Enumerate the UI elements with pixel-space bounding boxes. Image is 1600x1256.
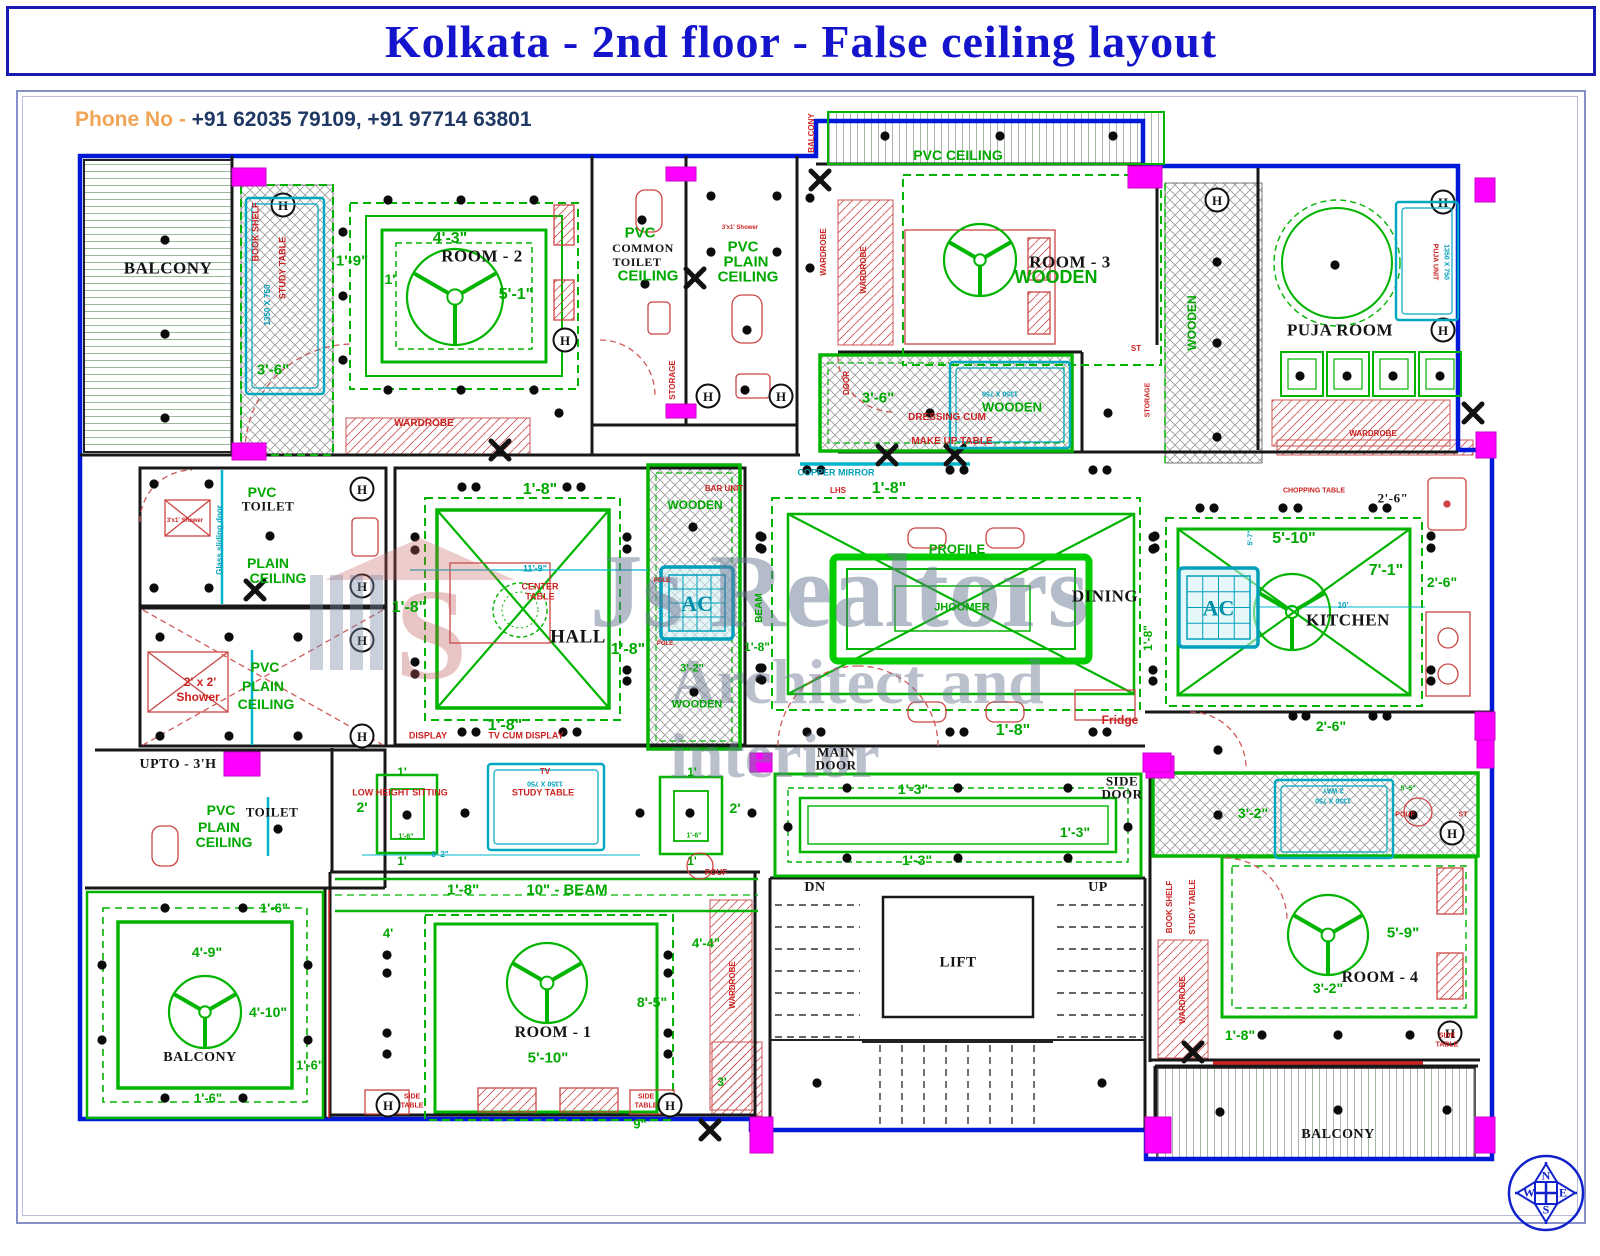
- ceiling-light-dot: [265, 531, 274, 540]
- ceiling-light-dot: [842, 853, 851, 862]
- plan-label: 1': [397, 855, 407, 867]
- ceiling-light-dot: [805, 193, 814, 202]
- ceiling-light-dot: [805, 263, 814, 272]
- ceiling-light-dot: [1103, 408, 1112, 417]
- plan-label: WARDROBE: [394, 419, 453, 429]
- ceiling-light-dot: [456, 385, 465, 394]
- ceiling-light-dot: [460, 808, 469, 817]
- ceiling-light-dot: [554, 408, 563, 417]
- floor-plan-canvas: Kolkata - 2nd floor - False ceiling layo…: [0, 0, 1600, 1256]
- ceiling-light-dot: [471, 727, 480, 736]
- ceiling-light-dot: [959, 465, 968, 474]
- ceiling-light-dot: [1342, 371, 1351, 380]
- plan-label: HALL: [550, 628, 606, 647]
- plan-label: 1350 X 750: [264, 285, 272, 326]
- junction-box-icon: [811, 171, 829, 189]
- ceiling-light-dot: [995, 131, 1004, 140]
- column-block: [1475, 712, 1495, 740]
- ceiling-light-dot: [635, 808, 644, 817]
- plan-label: 5'-1": [499, 287, 534, 303]
- ceiling-light-dot: [622, 676, 631, 685]
- plan-label: TABLE: [525, 593, 554, 602]
- ceiling-light-dot: [816, 727, 825, 736]
- plan-label: UP: [1088, 881, 1108, 895]
- ceiling-light-dot: [410, 657, 419, 666]
- ceiling-light-dot: [160, 413, 169, 422]
- ceiling-light-dot: [238, 1093, 247, 1102]
- plan-label: CEILING: [238, 697, 295, 711]
- plan-label: BALCONY: [124, 260, 213, 277]
- ceiling-light-dot: [1301, 711, 1310, 720]
- column-block: [1143, 753, 1171, 772]
- plan-label: 4'-9": [192, 945, 222, 959]
- plan-label: 10" - BEAM: [526, 883, 607, 898]
- plan-label: CHOPPING TABLE: [1283, 488, 1345, 495]
- plan-label: WOODEN: [982, 401, 1042, 414]
- ceiling-light-dot: [688, 522, 697, 531]
- ceiling-light-dot: [204, 583, 213, 592]
- ceiling-light-dot: [663, 968, 672, 977]
- ceiling-light-dot: [772, 247, 781, 256]
- ceiling-light-dot: [1102, 465, 1111, 474]
- ceiling-light-dot: [576, 482, 585, 491]
- ceiling-light-dot: [572, 727, 581, 736]
- plan-label: COPPER MIRROR: [797, 469, 874, 478]
- plan-label: 1'-8": [996, 723, 1031, 739]
- plan-label: 2' x 2': [184, 676, 216, 688]
- ceiling-light-dot: [1426, 543, 1435, 552]
- ceiling-light-dot: [1108, 131, 1117, 140]
- plan-label: STORAGE: [669, 360, 677, 399]
- ceiling-light-dot: [945, 465, 954, 474]
- ceiling-light-dot: [338, 355, 347, 364]
- plan-label: STUDY TABLE: [279, 237, 288, 299]
- ceiling-light-dot: [224, 731, 233, 740]
- ceiling-light-dot: [622, 665, 631, 674]
- plan-label: DOOR: [816, 759, 857, 772]
- ceiling-light-dot: [685, 808, 694, 817]
- plan-label: BALCONY: [163, 1051, 237, 1065]
- ceiling-light-dot: [410, 669, 419, 678]
- plan-label: SIDE: [1439, 1033, 1455, 1040]
- plan-label: 1'-6": [398, 834, 413, 841]
- plan-label: WARDROBE: [1349, 430, 1397, 438]
- ceiling-light-dot: [1278, 503, 1287, 512]
- plan-label: POUF: [705, 869, 727, 877]
- plan-label: TV: [540, 768, 550, 776]
- plan-label: POLE: [654, 578, 670, 584]
- ceiling-light-dot: [238, 903, 247, 912]
- ceiling-light-dot: [663, 1028, 672, 1037]
- column-block: [232, 443, 266, 460]
- ceiling-light-dot: [224, 632, 233, 641]
- plan-label: POUF: [1395, 812, 1414, 819]
- wardrobe-unit-icon: [488, 764, 604, 850]
- plan-label: TOILET: [242, 500, 295, 513]
- plan-label: TABLE: [401, 1103, 424, 1110]
- plan-label: 1350 X 750: [527, 780, 563, 787]
- plan-label: 5'-9": [1387, 926, 1419, 941]
- plan-label: 10': [1338, 602, 1349, 610]
- ceiling-light-dot: [757, 532, 766, 541]
- column-block: [666, 404, 696, 418]
- column-block: [750, 753, 772, 772]
- ceiling-light-dot: [1382, 711, 1391, 720]
- plan-label: SIDE: [638, 1094, 654, 1101]
- column-block: [224, 752, 260, 776]
- ceiling-light-dot: [97, 1035, 106, 1044]
- plan-label: LHS: [830, 487, 846, 495]
- ceiling-light-dot: [529, 195, 538, 204]
- ceiling-light-dot: [757, 663, 766, 672]
- hanging-light-letter: H: [1212, 193, 1222, 208]
- plan-label: CEILING: [250, 571, 307, 585]
- plan-label: PLAIN: [198, 820, 240, 834]
- junction-box-icon: [701, 1121, 719, 1139]
- plan-label: 1'-3": [902, 853, 932, 867]
- plan-label: 3': [717, 1076, 727, 1088]
- hanging-light-letter: H: [278, 198, 288, 213]
- plan-label: WARDROBE: [729, 961, 737, 1009]
- ceiling-light-dot: [953, 783, 962, 792]
- plan-label: STUDY TABLE: [1189, 879, 1197, 934]
- ceiling-light-dot: [402, 810, 411, 819]
- staircase: [775, 905, 1143, 1125]
- ceiling-light-dot: [382, 1049, 391, 1058]
- plan-label: 3'-2": [1313, 981, 1343, 995]
- ceiling-light-dot: [1088, 465, 1097, 474]
- plan-label: PLAIN: [724, 255, 769, 270]
- ac-unit-label: AC: [1203, 596, 1235, 621]
- plan-label: ROOM - 1: [515, 1025, 592, 1041]
- plan-label: DOOR: [1102, 788, 1143, 801]
- ceiling-light-dot: [160, 903, 169, 912]
- plan-label: CEILING: [718, 270, 779, 285]
- hanging-light-letter: H: [357, 633, 367, 648]
- plan-label: 1'-8": [611, 642, 646, 658]
- plan-label: ST: [1131, 345, 1141, 353]
- ceiling-light-dot: [1426, 531, 1435, 540]
- ceiling-light-dot: [303, 1035, 312, 1044]
- ceiling-light-dot: [204, 479, 213, 488]
- ceiling-light-dot: [1097, 1078, 1106, 1087]
- ceiling-light-dot: [663, 1049, 672, 1058]
- plan-label: 1350 X 750: [1315, 797, 1351, 804]
- plan-label: PUJA UNIT: [1432, 244, 1439, 281]
- plan-label: Shower: [176, 691, 219, 703]
- plan-label: WOODEN: [1015, 268, 1098, 286]
- hanging-light-letter: H: [703, 389, 713, 404]
- plan-label: 1'-6": [194, 1092, 222, 1105]
- ceiling-light-dot: [383, 385, 392, 394]
- plan-label: 5'-5": [1400, 786, 1415, 793]
- plan-label: PVC: [207, 803, 236, 817]
- plan-label: 1'-8": [1142, 625, 1154, 651]
- plan-label: 1': [687, 766, 697, 778]
- ceiling-light-dot: [160, 235, 169, 244]
- ceiling-light-dot: [1213, 810, 1222, 819]
- plan-label: 2': [356, 800, 367, 814]
- plan-label: 4'-3": [433, 231, 468, 247]
- ceiling-light-dot: [1063, 783, 1072, 792]
- plan-label: 3'-2": [1238, 806, 1268, 820]
- plan-label: 1': [687, 855, 697, 867]
- ceiling-light-dot: [1333, 1105, 1342, 1114]
- ceiling-light-dot: [338, 227, 347, 236]
- plan-label: CENTER: [521, 583, 558, 592]
- plan-label: DINING: [1072, 588, 1138, 605]
- plan-label: PLAIN: [247, 556, 289, 570]
- ceiling-light-dot: [1212, 338, 1221, 347]
- plan-label: 1'-8": [523, 482, 558, 498]
- ceiling-light-dot: [880, 131, 889, 140]
- plan-label: CEILING: [196, 835, 253, 849]
- column-block: [1475, 178, 1495, 202]
- plan-label: 1': [384, 272, 395, 286]
- hanging-light-letter: H: [1447, 826, 1457, 841]
- ceiling-light-dot: [1333, 1030, 1342, 1039]
- plan-label: STORAGE: [1145, 383, 1152, 418]
- ceiling-light-dot: [562, 482, 571, 491]
- hanging-light-letter: H: [357, 482, 367, 497]
- hanging-light-letter: H: [776, 389, 786, 404]
- plan-label: 3'x1' Shower: [722, 225, 758, 231]
- column-block: [1475, 1117, 1495, 1153]
- ceiling-light-dot: [1150, 543, 1159, 552]
- column-block: [1477, 740, 1494, 768]
- ceiling-light-dot: [471, 482, 480, 491]
- plan-label: MAKE UP TABLE: [911, 437, 992, 447]
- ceiling-light-dot: [812, 1078, 821, 1087]
- ceiling-light-dot: [747, 808, 756, 817]
- ceiling-light-dot: [1102, 727, 1111, 736]
- plan-label: PVC: [625, 226, 656, 241]
- column-block: [1145, 1117, 1171, 1153]
- plan-label: POLE: [657, 641, 673, 647]
- ceiling-light-dot: [155, 731, 164, 740]
- compass-w: W: [1523, 1186, 1535, 1201]
- plan-label: PROFILE: [929, 543, 985, 556]
- stair-landing: [770, 1040, 1145, 1042]
- plan-label: 2'-6": [1427, 575, 1457, 589]
- plan-label: 5'-10": [1272, 531, 1315, 547]
- ceiling-light-dot: [149, 479, 158, 488]
- ceiling-light-dot: [1368, 711, 1377, 720]
- plan-label: TABLE: [635, 1103, 658, 1110]
- ceiling-light-dot: [1257, 1030, 1266, 1039]
- ceiling-light-dot: [1212, 257, 1221, 266]
- plan-label: UPTO - 3'H: [139, 758, 216, 772]
- ceiling-light-dot: [689, 687, 698, 696]
- ceiling-light-dot: [457, 482, 466, 491]
- plan-label: PVC: [248, 485, 277, 499]
- plan-label: DN: [804, 881, 825, 895]
- ceiling-light-dot: [382, 1028, 391, 1037]
- ceiling-light-dot: [1148, 665, 1157, 674]
- plan-label: 1'-6": [686, 833, 701, 840]
- compass-svg: [1505, 1152, 1587, 1234]
- compass-s: S: [1543, 1203, 1550, 1218]
- ceiling-light-dot: [802, 727, 811, 736]
- plan-label: 11'-9": [523, 565, 547, 574]
- plan-label: 1350 X 750: [1443, 244, 1450, 280]
- junction-box-icon: [1464, 404, 1482, 422]
- hanging-light-letter: H: [560, 333, 570, 348]
- plan-label: 1'-9": [336, 254, 368, 269]
- ceiling-light-dot: [1215, 1107, 1224, 1116]
- ceiling-light-dot: [97, 960, 106, 969]
- ceiling-light-dot: [273, 824, 282, 833]
- ceiling-light-dot: [1195, 503, 1204, 512]
- plan-label: 1'-8": [744, 641, 770, 653]
- plan-label: 1350 X 750: [982, 390, 1018, 397]
- plan-label: ROOM - 2: [441, 248, 522, 265]
- ceiling-light-dot: [160, 1093, 169, 1102]
- plan-label: JHOOMER: [934, 603, 990, 614]
- ceiling-light-dot: [410, 532, 419, 541]
- plan-label: PVC: [251, 660, 280, 674]
- plan-label: 1': [397, 766, 407, 778]
- plan-label: 1'-8": [392, 600, 427, 616]
- plan-label: 4': [383, 927, 393, 940]
- plan-label: KITCHEN: [1306, 612, 1390, 629]
- ceiling-light-dot: [293, 731, 302, 740]
- ceiling-light-dot: [383, 195, 392, 204]
- plan-label: ST: [1459, 812, 1468, 819]
- plan-label: 3'x1' Shower: [167, 518, 203, 524]
- ceiling-light-dot: [1442, 1105, 1451, 1114]
- ceiling-light-dot: [1295, 371, 1304, 380]
- plan-label: WOODEN: [667, 499, 722, 511]
- plan-label: 2 WAY: [1322, 787, 1343, 794]
- plan-label: 5'-10": [528, 1051, 569, 1066]
- plan-label: 1'-6": [296, 1059, 324, 1072]
- plan-label: PUJA ROOM: [1287, 322, 1393, 339]
- column-block: [750, 1117, 773, 1153]
- plan-label: 4'-4": [692, 937, 720, 950]
- plan-label: 1'-3": [898, 782, 928, 796]
- ceiling-light-dot: [1212, 432, 1221, 441]
- plan-label: 5'-7": [1248, 530, 1255, 545]
- plan-label: STUDY TABLE: [512, 789, 574, 798]
- hanging-light-letter: H: [383, 1098, 393, 1113]
- ceiling-light-dot: [1330, 260, 1339, 269]
- ceiling-light-dot: [757, 675, 766, 684]
- plan-label: WOODEN: [672, 700, 723, 711]
- column-block: [232, 168, 266, 186]
- plan-label: PVC: [728, 240, 759, 255]
- ceiling-light-dot: [1213, 745, 1222, 754]
- column-block: [1128, 166, 1162, 188]
- ceiling-light-dot: [155, 632, 164, 641]
- plan-label: BAR UNIT: [705, 485, 743, 493]
- plan-label: BALCONY: [808, 113, 816, 153]
- plan-label: LIFT: [939, 956, 976, 971]
- ceiling-light-dot: [637, 215, 646, 224]
- plan-label: WARDROBE: [860, 246, 868, 294]
- plan-label: PLAIN: [242, 679, 284, 693]
- furniture-red: [148, 190, 1470, 1118]
- plan-label: TV CUM DISPLAY: [488, 732, 563, 741]
- column-block: [1476, 432, 1496, 458]
- ceiling-light-dot: [1426, 676, 1435, 685]
- ceiling-light-dot: [1063, 853, 1072, 862]
- plan-label: 2'-6": [1316, 719, 1346, 733]
- ceiling-light-dot: [1150, 531, 1159, 540]
- hanging-light-letter: H: [357, 579, 367, 594]
- plan-label: TOILET: [613, 256, 662, 268]
- compass-n: N: [1542, 1169, 1551, 1184]
- ceiling-light-dot: [622, 544, 631, 553]
- ceiling-light-dot: [1426, 665, 1435, 674]
- plan-label: ROOM - 4: [1342, 970, 1419, 986]
- plan-label: DRESSING CUM: [908, 413, 986, 423]
- ceiling-light-dot: [1405, 1030, 1414, 1039]
- plan-label: PVC CEILING: [913, 148, 1002, 162]
- plan-label: SIDE: [404, 1094, 420, 1101]
- ceiling-light-dot: [772, 191, 781, 200]
- ceiling-light-dot: [529, 385, 538, 394]
- ceiling-light-dot: [338, 291, 347, 300]
- ceiling-light-dot: [1293, 503, 1302, 512]
- plan-label: BEAM: [755, 593, 765, 622]
- plan-label: BOOK SHELF: [1166, 881, 1174, 933]
- plan-label: 6'-2": [431, 851, 448, 859]
- plan-label: Fridge: [1102, 714, 1139, 726]
- hanging-light-letter: H: [1438, 323, 1448, 338]
- ceiling-light-dot: [1435, 371, 1444, 380]
- ceiling-light-dot: [149, 583, 158, 592]
- ceiling-light-dot: [303, 960, 312, 969]
- ceiling-light-dot: [757, 544, 766, 553]
- ceiling-light-dot: [945, 727, 954, 736]
- plan-label: DISPLAY: [409, 732, 447, 741]
- ceiling-light-dot: [783, 822, 792, 831]
- plan-label: WOODEN: [1186, 295, 1198, 350]
- plan-label: BOOK SHELF: [252, 202, 261, 261]
- ceiling-light-dot: [1209, 503, 1218, 512]
- ceiling-light-dot: [740, 385, 749, 394]
- plan-label: TOILET: [246, 806, 299, 819]
- ceiling-light-dot: [382, 950, 391, 959]
- plan-label: 7'-1": [1369, 563, 1404, 579]
- junction-box-icon: [686, 269, 704, 287]
- ceiling-light-dot: [1148, 676, 1157, 685]
- plan-label: BALCONY: [1301, 1128, 1375, 1142]
- ceiling-light-dot: [959, 727, 968, 736]
- ceiling-light-dot: [1368, 503, 1377, 512]
- ac-unit-label: AC: [681, 591, 713, 616]
- plan-label: 1'-3": [1060, 825, 1090, 839]
- hanging-light-letter: H: [665, 1098, 675, 1113]
- ceiling-light-dot: [457, 727, 466, 736]
- plan-label: 1'-8": [872, 481, 907, 497]
- plan-label: COMMON: [612, 242, 674, 254]
- plan-label: LOW HEIGHT SITTING: [352, 789, 448, 798]
- plan-label: 1'-8": [1225, 1028, 1255, 1042]
- ceiling-light-dot: [1388, 371, 1397, 380]
- plan-label: TABLE: [1436, 1042, 1459, 1049]
- ceiling-light-dot: [456, 195, 465, 204]
- compass-rose: N S W E: [1505, 1152, 1587, 1234]
- plan-label: WARDROBE: [820, 228, 828, 276]
- plan-label: 2': [729, 801, 740, 815]
- ceiling-light-dot: [293, 632, 302, 641]
- ceiling-light-dot: [706, 191, 715, 200]
- plan-label: 3'-6": [257, 363, 289, 378]
- ceiling-light-dot: [706, 247, 715, 256]
- plan-label: 1'-6": [260, 902, 288, 915]
